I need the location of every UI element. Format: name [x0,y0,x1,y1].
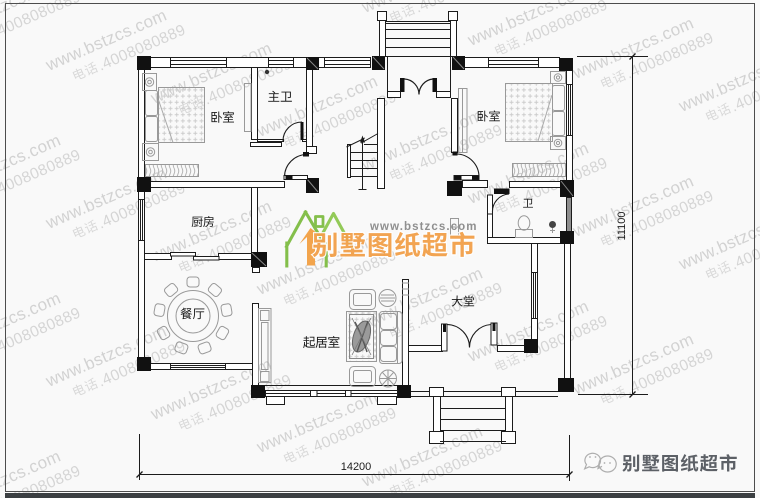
svg-text:14200: 14200 [341,461,372,473]
svg-text:11100: 11100 [616,212,628,241]
